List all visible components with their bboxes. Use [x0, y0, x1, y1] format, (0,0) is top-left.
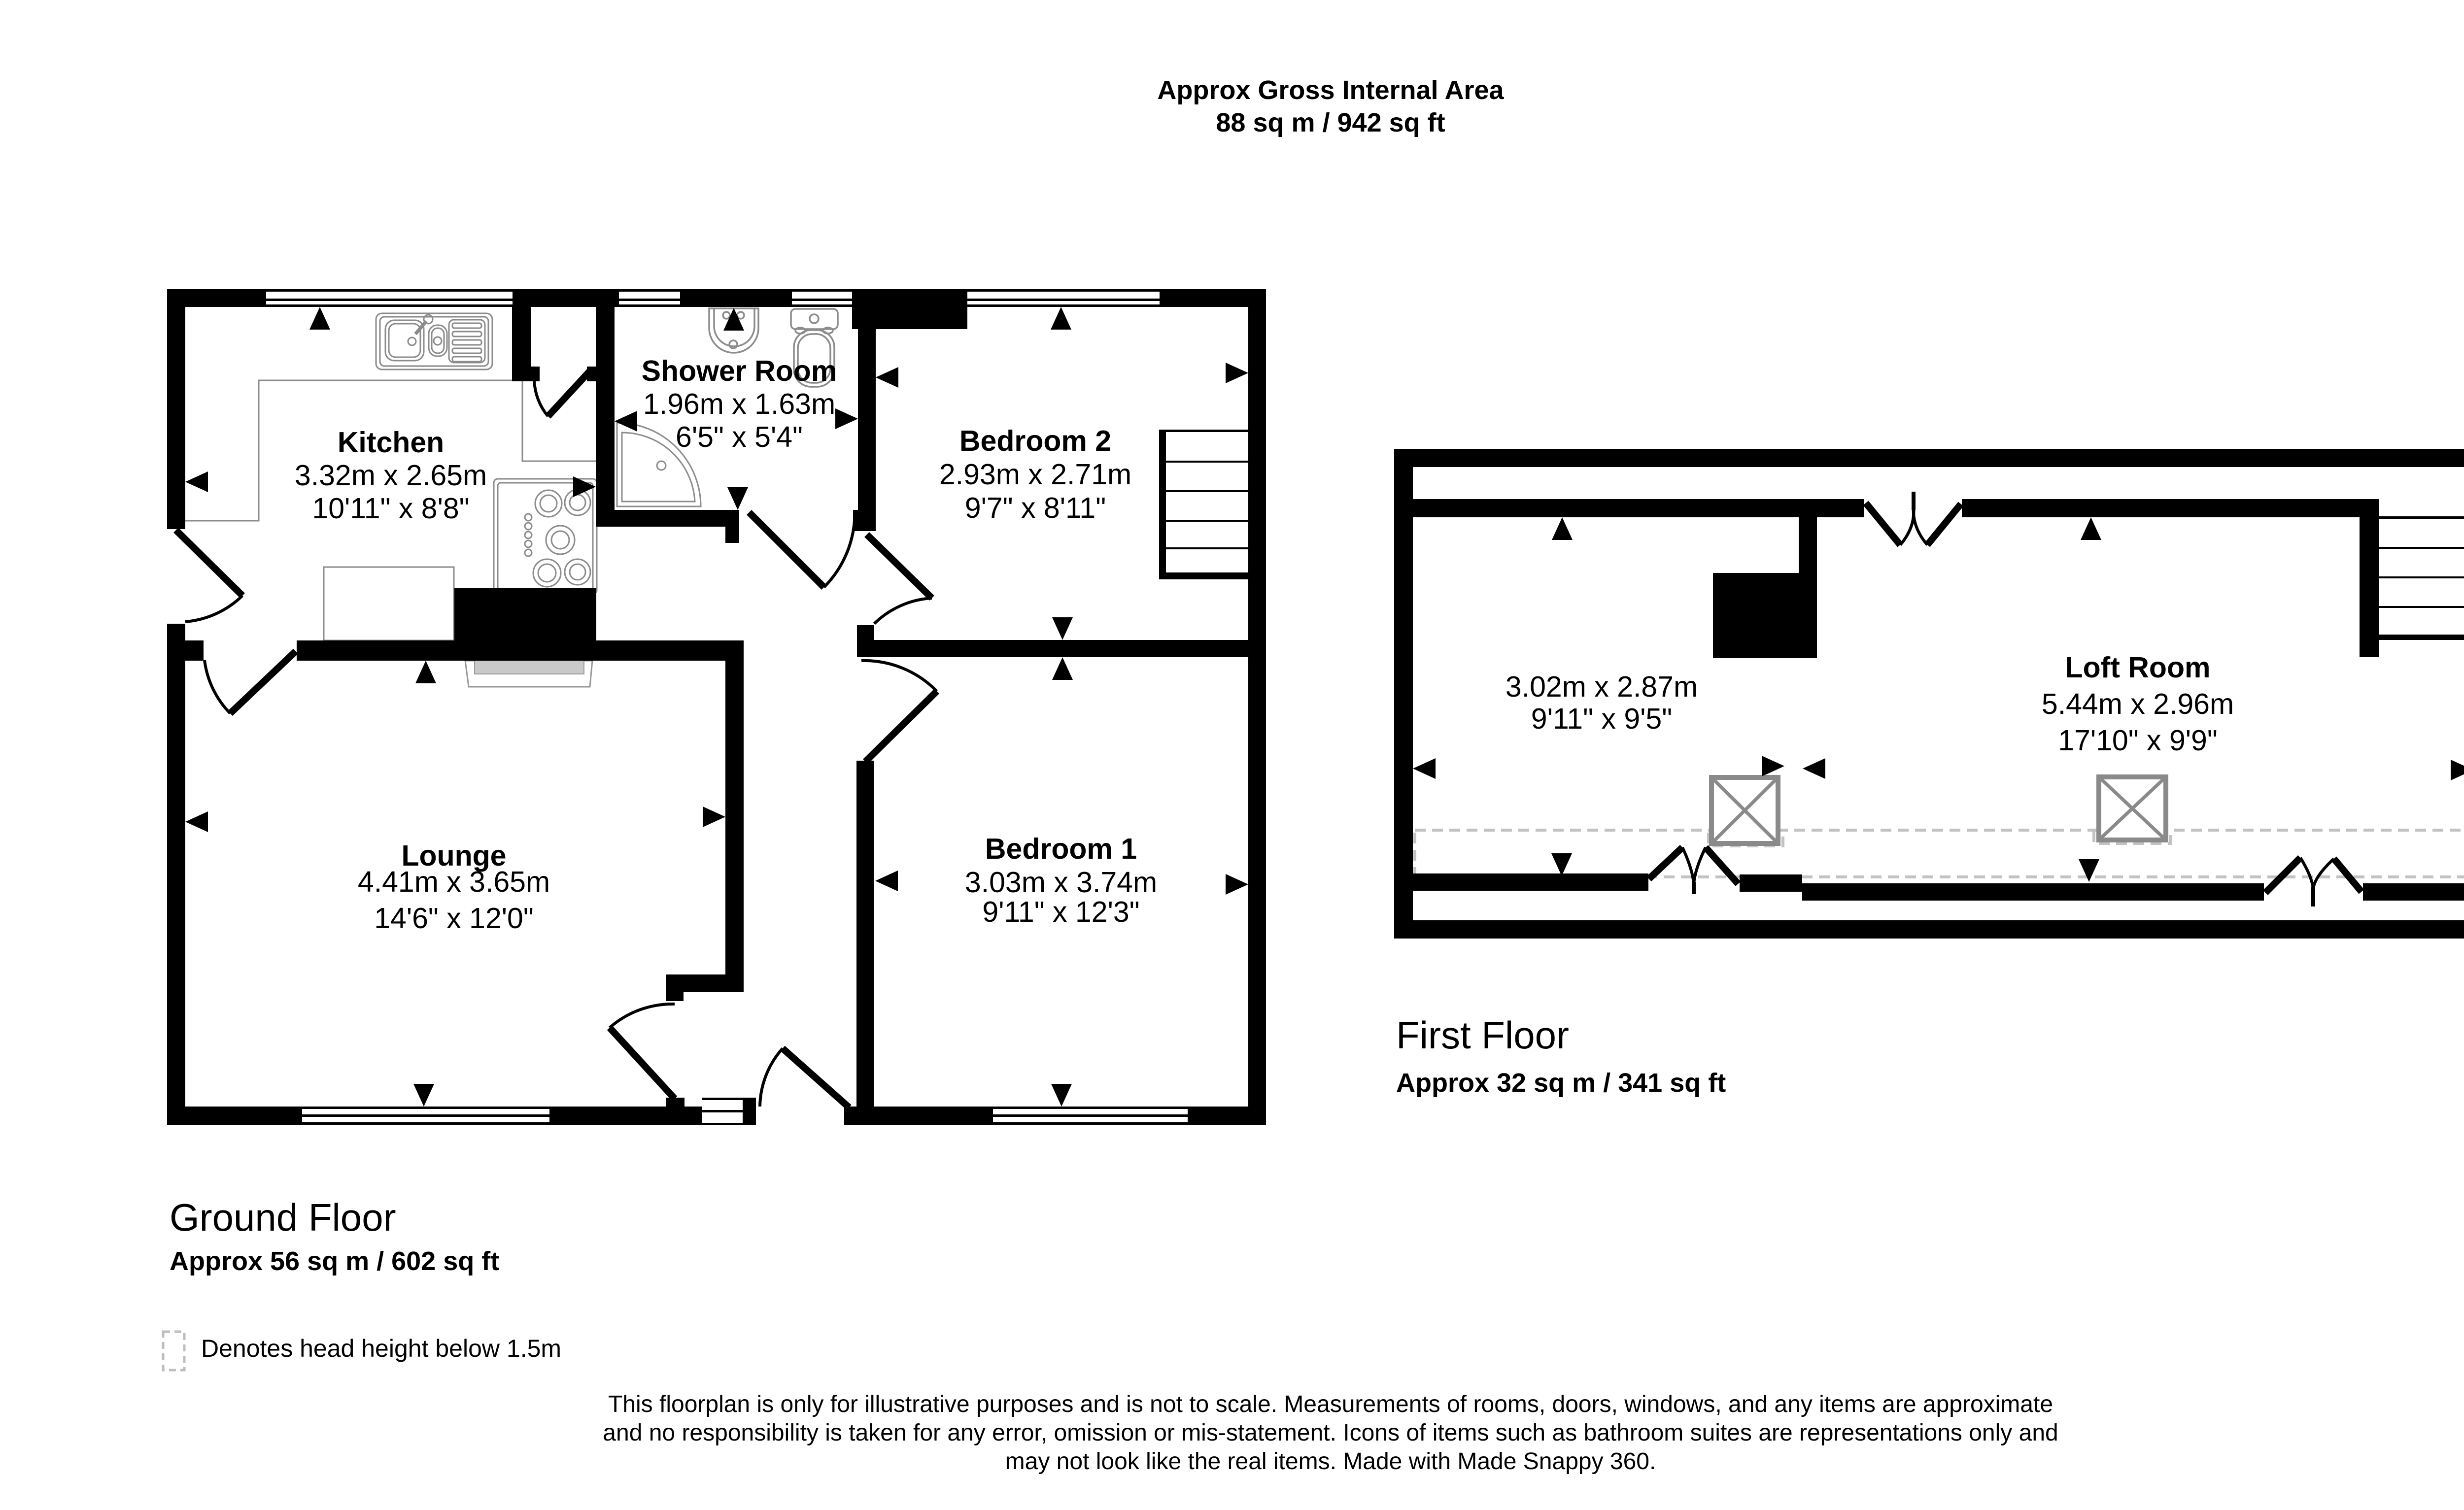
- svg-text:2.93m x 2.71m: 2.93m x 2.71m: [939, 458, 1131, 491]
- svg-text:First Floor: First Floor: [1396, 1013, 1569, 1057]
- svg-text:may not look like the real ite: may not look like the real items. Made w…: [1005, 1448, 1656, 1475]
- svg-text:Loft Room: Loft Room: [2065, 651, 2211, 684]
- svg-text:3.32m x 2.65m: 3.32m x 2.65m: [295, 459, 487, 492]
- svg-text:10'11" x 8'8": 10'11" x 8'8": [312, 492, 469, 525]
- svg-text:17'10" x 9'9": 17'10" x 9'9": [2058, 724, 2218, 757]
- svg-text:Approx 56 sq m / 602 sq ft: Approx 56 sq m / 602 sq ft: [170, 1246, 499, 1276]
- svg-text:Ground Floor: Ground Floor: [170, 1196, 396, 1239]
- svg-text:Approx 32 sq m / 341 sq ft: Approx 32 sq m / 341 sq ft: [1396, 1068, 1726, 1098]
- svg-text:4.41m x 3.65m: 4.41m x 3.65m: [358, 866, 550, 898]
- svg-text:5.44m x 2.96m: 5.44m x 2.96m: [2042, 688, 2234, 720]
- svg-text:Bedroom 1: Bedroom 1: [985, 833, 1137, 865]
- svg-text:3.03m x 3.74m: 3.03m x 3.74m: [965, 866, 1157, 899]
- svg-text:Denotes head height below 1.5m: Denotes head height below 1.5m: [201, 1335, 561, 1362]
- svg-text:3.02m x 2.87m: 3.02m x 2.87m: [1506, 671, 1698, 703]
- svg-text:14'6" x 12'0": 14'6" x 12'0": [374, 902, 534, 935]
- svg-text:This floorplan is only for ill: This floorplan is only for illustrative …: [608, 1391, 2053, 1417]
- svg-text:Approx Gross Internal Area: Approx Gross Internal Area: [1157, 75, 1504, 105]
- svg-text:9'11" x 9'5": 9'11" x 9'5": [1531, 703, 1672, 735]
- svg-text:88 sq m / 942 sq ft: 88 sq m / 942 sq ft: [1216, 108, 1445, 137]
- svg-text:Shower Room: Shower Room: [642, 355, 837, 387]
- svg-text:Kitchen: Kitchen: [338, 426, 444, 459]
- svg-text:9'11" x 12'3": 9'11" x 12'3": [982, 896, 1139, 928]
- svg-text:Bedroom 2: Bedroom 2: [959, 425, 1111, 457]
- svg-text:9'7" x 8'11": 9'7" x 8'11": [965, 492, 1106, 524]
- svg-text:1.96m x 1.63m: 1.96m x 1.63m: [643, 388, 835, 420]
- svg-text:and no responsibility is taken: and no responsibility is taken for any e…: [603, 1420, 2058, 1446]
- svg-text:6'5" x 5'4": 6'5" x 5'4": [676, 421, 803, 453]
